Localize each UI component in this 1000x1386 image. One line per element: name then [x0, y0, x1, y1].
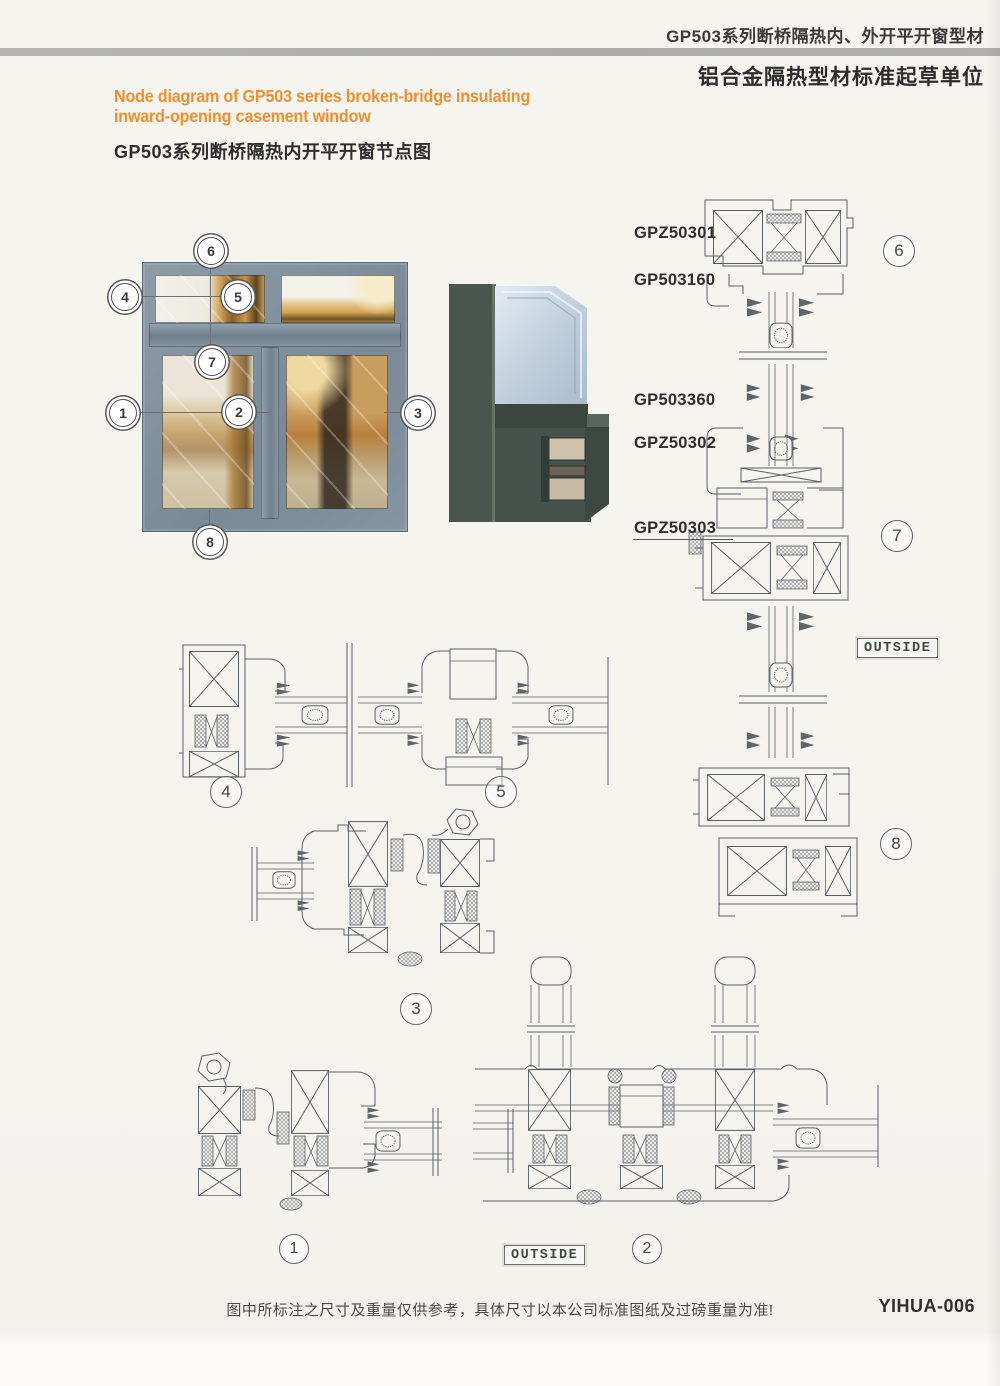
- section-marker-4: 4: [210, 776, 242, 808]
- header-product-line: GP503系列断桥隔热内、外开平开窗型材: [666, 22, 984, 47]
- title-chinese: GP503系列断桥隔热内开平开窗节点图: [114, 138, 432, 164]
- casement-pane-right: [286, 355, 388, 509]
- outside-label-right: OUTSIDE: [857, 638, 938, 658]
- section-4-drawing: [175, 635, 355, 795]
- callout-line-6-7: [210, 264, 211, 348]
- header-divider-bar: [0, 48, 1000, 56]
- callout-line-1-2: [135, 412, 225, 413]
- casement-pane-left: [162, 355, 254, 509]
- outside-label-bottom: OUTSIDE: [504, 1245, 585, 1265]
- section-1-drawing: [148, 1048, 442, 1220]
- gpz50303-leader-line: [633, 539, 733, 540]
- title-english-line2: inward-opening casement window: [114, 106, 530, 126]
- callout-line-4-5: [137, 296, 225, 297]
- section-marker-7: 7: [881, 520, 913, 552]
- section-3-drawing: [250, 805, 500, 983]
- header-org-line: 铝合金隔热型材标准起草单位: [698, 61, 984, 91]
- callout-line-3: [384, 412, 404, 413]
- catalog-page: GP503系列断桥隔热内、外开平开窗型材 铝合金隔热型材标准起草单位 Node …: [0, 0, 1000, 1386]
- profile-label-gpz50301: GPZ50301: [634, 224, 716, 243]
- title-english: Node diagram of GP503 series broken-brid…: [114, 86, 530, 126]
- profile-label-gpz50303: GPZ50303: [634, 519, 716, 538]
- photo-callout-5: 5: [224, 283, 252, 311]
- photo-callout-4: 4: [111, 283, 139, 311]
- window-photo: [142, 262, 408, 532]
- section-marker-5: 5: [485, 776, 517, 808]
- center-mullion: [261, 347, 279, 519]
- section-marker-2: 2: [632, 1234, 662, 1264]
- section-2-drawing: [473, 955, 888, 1227]
- photo-callout-8: 8: [196, 528, 224, 556]
- photo-callout-7: 7: [198, 348, 226, 376]
- title-english-line1: Node diagram of GP503 series broken-brid…: [114, 86, 530, 106]
- section-marker-1: 1: [279, 1234, 309, 1264]
- callout-line-8: [209, 510, 210, 528]
- section-marker-8: 8: [880, 828, 912, 860]
- section-marker-3: 3: [400, 993, 432, 1025]
- callout-line-2-mullion: [251, 412, 269, 413]
- profile-label-gpz50302: GPZ50302: [634, 434, 716, 453]
- photo-callout-3: 3: [404, 399, 432, 427]
- profile-label-gp503360: GP503360: [634, 391, 715, 410]
- footer-note: 图中所标注之尺寸及重量仅供参考，具体尺寸以本公司标准图纸及过磅重量为准!: [180, 1299, 820, 1320]
- profile-label-gp503160: GP503160: [634, 271, 715, 290]
- transom-bar: [149, 323, 401, 347]
- photo-callout-2: 2: [225, 398, 253, 426]
- transom-pane-right: [281, 275, 395, 323]
- corner-3d-render: [437, 276, 619, 524]
- photo-callout-6: 6: [197, 237, 225, 265]
- photo-callout-1: 1: [109, 399, 137, 427]
- vertical-section-drawing: [683, 196, 883, 926]
- footer-page-code: YIHUA-006: [878, 1296, 975, 1317]
- section-marker-6: 6: [883, 235, 915, 267]
- section-5-drawing: [358, 635, 614, 803]
